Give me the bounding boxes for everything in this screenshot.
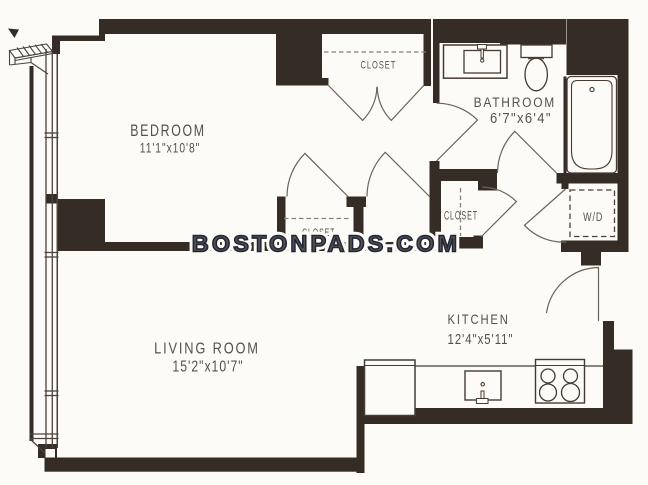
svg-text:KITCHEN: KITCHEN (447, 312, 509, 327)
svg-text:BATHROOM: BATHROOM (474, 94, 556, 110)
svg-text:W/D: W/D (583, 211, 603, 225)
svg-text:6'7"x6'4": 6'7"x6'4" (490, 110, 552, 126)
svg-text:LIVING ROOM: LIVING ROOM (154, 340, 260, 357)
svg-text:BOSTONPADS.COM: BOSTONPADS.COM (192, 231, 460, 257)
svg-text:15'2"x10'7": 15'2"x10'7" (172, 358, 243, 376)
svg-text:CLOSET: CLOSET (361, 59, 397, 72)
svg-text:CLOSET: CLOSET (444, 210, 478, 223)
svg-text:12'4"x5'11": 12'4"x5'11" (448, 330, 514, 347)
svg-text:BEDROOM: BEDROOM (130, 122, 206, 140)
svg-text:11'1"x10'8": 11'1"x10'8" (140, 140, 200, 156)
